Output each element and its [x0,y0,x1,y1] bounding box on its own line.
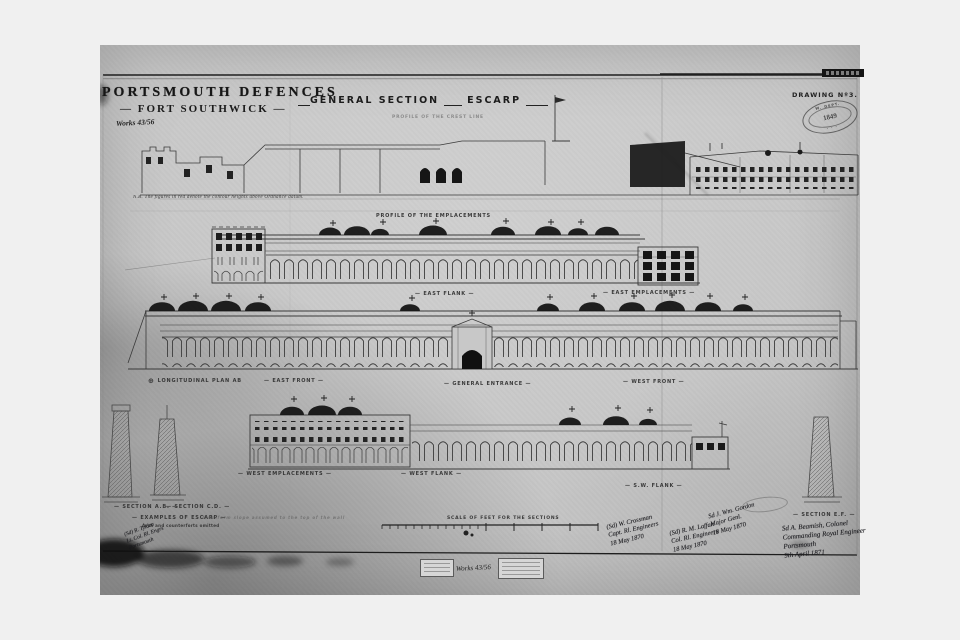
label-scale: SCALE OF FEET FOR THE SECTIONS [447,516,559,521]
label-general-entrance: — GENERAL ENTRANCE — [444,381,531,387]
sheet-heading-text2: ESCARP [467,95,521,106]
label-west-flank: — WEST FLANK — [401,471,462,477]
scale-bar [382,523,598,531]
label-examples-note: A uniform slope assumed to the top of th… [202,515,345,520]
heading-rule [444,97,462,106]
illegible-microtext [502,562,540,575]
longitudinal-plan-text: LONGITUDINAL PLAN AB [158,378,242,384]
survey-mark-icon: ⊕ [148,377,155,385]
heading-rule [298,97,310,106]
sheet-heading: GENERAL SECTION ESCARP [298,95,548,106]
illegible-microtext [424,563,450,573]
section-long-elevation [128,311,858,369]
illegible-microtext [826,71,860,75]
signature-4: Sd A. Beamish, Colonel Commanding Royal … [782,517,868,560]
label-east-flank: — EAST FLANK — [415,291,474,297]
label-east-emplacements: — EAST EMPLACEMENTS — [603,290,695,296]
sheet-border [103,74,857,555]
label-sw-flank: — S.W. FLANK — [625,483,682,489]
sheet-heading-text: GENERAL SECTION [310,95,439,106]
border-tab-label [822,69,864,77]
label-section-cd: — SECTION C.D. — [166,504,230,510]
label-west-emplacements: — WEST EMPLACEMENTS — [238,471,332,477]
drawing-subtitle: — FORT SOUTHWICK — [120,103,287,115]
creases [130,77,840,551]
page: { "header": { "title": "PORTSMOUTH DEFEN… [0,0,960,640]
label-section-ef: — SECTION E.F. — [793,512,855,518]
footer-printed-label [498,558,544,579]
crest-profile-note: PROFILE OF THE CREST LINE [392,115,484,120]
section-emplacements [125,227,700,285]
section-west-elevation [248,415,730,469]
label-emplacements-profile: PROFILE OF THE EMPLACEMENTS [376,213,491,219]
label-east-front: — EAST FRONT — [264,378,324,384]
nb-note: N.B. The figures in red denote the conto… [133,195,304,200]
scale-ornament [464,531,474,537]
footer-scale-chip [420,559,454,577]
label-longitudinal-plan: ⊕LONGITUDINAL PLAN AB [148,377,242,385]
drawing-number: DRAWING Nº3. [792,91,858,99]
label-west-front: — WEST FRONT — [623,379,684,385]
heading-rule [526,97,548,106]
drawing-photograph: PORTSMOUTH DEFENCES — FORT SOUTHWICK — W… [100,45,860,595]
